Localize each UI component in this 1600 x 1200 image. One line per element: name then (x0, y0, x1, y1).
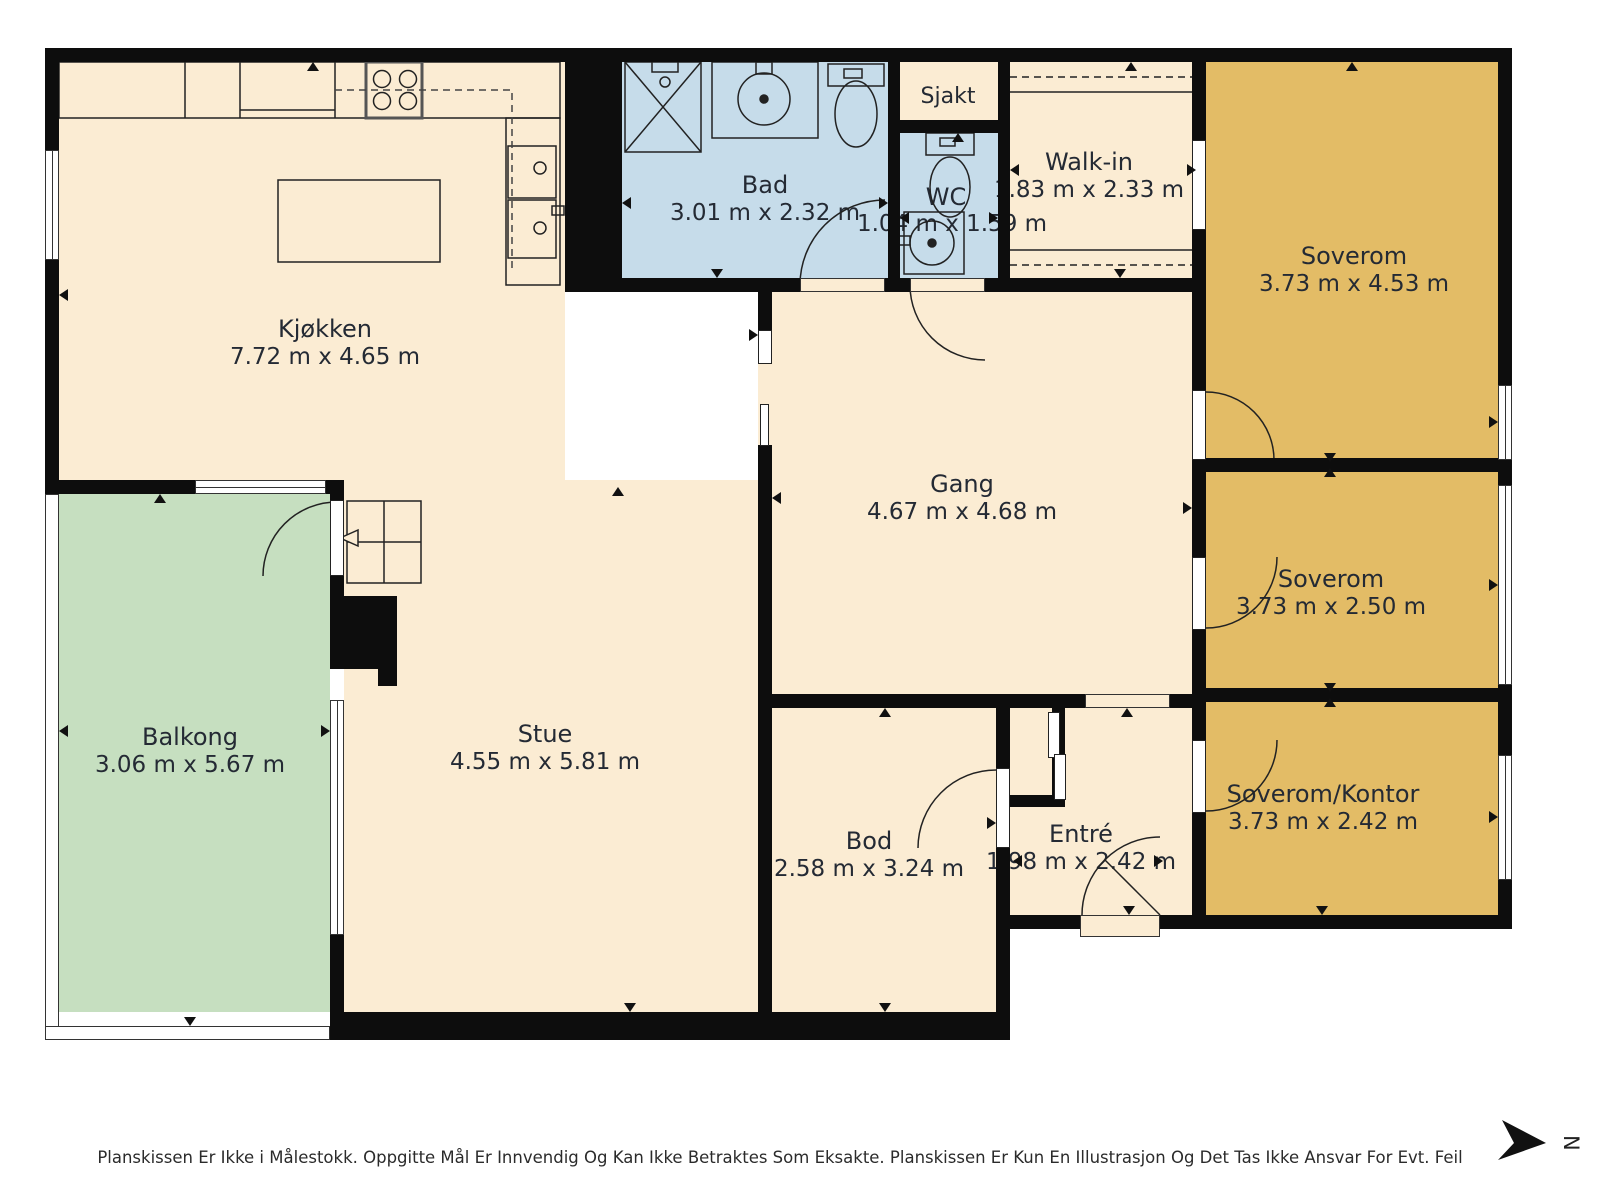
wall (758, 445, 772, 1012)
wall (996, 708, 1010, 1012)
window (45, 150, 59, 260)
wall-tick-icon (1154, 855, 1163, 867)
wall-tick-icon (624, 1003, 636, 1012)
door-arc-soverom1 (1206, 392, 1274, 460)
window (1498, 485, 1512, 685)
wall-tick-icon (1187, 164, 1196, 176)
door-leaf-soverom2 (1192, 557, 1206, 630)
wall (1206, 688, 1498, 702)
wall (1170, 694, 1192, 708)
wall-tick-icon (1489, 416, 1498, 428)
wall-tick-icon (1324, 683, 1336, 692)
table-icon (340, 501, 421, 583)
front-door-threshold (1080, 915, 1160, 937)
wall-tick-icon (711, 269, 723, 278)
wall (330, 1012, 1010, 1040)
wall (330, 935, 344, 1012)
wall-tick-icon (1125, 62, 1137, 71)
wall (900, 120, 998, 133)
wall (45, 48, 1512, 62)
floor-plan: Kjøkken 7.72 m x 4.65 m Bad 3.01 m x 2.3… (0, 0, 1600, 1200)
door-leaf-soverom1 (1192, 390, 1206, 460)
sliding-door-jamb (758, 330, 772, 364)
window (195, 480, 326, 494)
wall (885, 278, 910, 292)
balcony-railing (45, 1026, 330, 1040)
window (1498, 755, 1512, 880)
wall-tick-icon (1324, 698, 1336, 707)
wall-tick-icon (1013, 855, 1022, 867)
wall-tick-icon (900, 212, 909, 224)
wall (565, 62, 622, 292)
door-arc-soverom2 (1206, 557, 1277, 628)
door-arc-balkong (263, 502, 337, 576)
wall (758, 694, 1085, 708)
wall-tick-icon (1346, 62, 1358, 71)
wall-tick-icon (749, 329, 758, 341)
wall (1498, 460, 1512, 485)
wall-tick-icon (1316, 906, 1328, 915)
wall-tick-icon (59, 725, 68, 737)
wall-tick-icon (1010, 164, 1019, 176)
door-arc-bod (918, 770, 996, 848)
wall-tick-icon (987, 817, 996, 829)
wall-tick-icon (989, 212, 998, 224)
wall-tick-icon (952, 133, 964, 142)
closet-sliding-door (1054, 754, 1066, 800)
wardrobe-icon (1010, 77, 1192, 265)
door-arc-kontor (1206, 740, 1277, 811)
wall (1498, 62, 1512, 385)
window (330, 700, 344, 935)
sliding-door-leaf (760, 404, 769, 446)
door-leaf-balkong (330, 500, 344, 576)
chimney-block (378, 669, 397, 686)
wall-tick-icon (1489, 579, 1498, 591)
wall (1192, 460, 1206, 557)
wall (758, 292, 772, 330)
wall-tick-icon (1183, 502, 1192, 514)
wall (1160, 915, 1512, 929)
wall (1010, 915, 1080, 929)
wall (330, 576, 344, 596)
wall-tick-icon (1121, 708, 1133, 717)
door-threshold-wc (910, 278, 985, 292)
wall-tick-icon (1489, 811, 1498, 823)
wall (622, 278, 800, 292)
balcony-railing (45, 494, 59, 1040)
wall-tick-icon (1324, 468, 1336, 477)
chimney-block (330, 596, 397, 669)
wall-tick-icon (307, 62, 319, 71)
door-leaf-kontor (1192, 740, 1206, 813)
wall-tick-icon (1324, 453, 1336, 462)
wall (59, 480, 195, 494)
wall-tick-icon (772, 492, 781, 504)
closet-sliding-door (1048, 712, 1060, 758)
wall-tick-icon (321, 725, 330, 737)
wall-tick-icon (622, 197, 631, 209)
wall-tick-icon (1123, 906, 1135, 915)
wall (1192, 630, 1206, 740)
door-threshold-bad (800, 278, 885, 292)
door-leaf-bod (996, 768, 1010, 848)
wall (1192, 230, 1206, 390)
wall (1206, 458, 1498, 472)
wall-tick-icon (879, 197, 888, 209)
wall (326, 480, 344, 494)
wall (888, 62, 900, 278)
kitchen-counter (59, 62, 560, 285)
door-arc-wc (910, 285, 985, 360)
wall (1192, 813, 1206, 915)
door-arc-bad (800, 200, 885, 285)
shower-icon (625, 62, 701, 152)
wc-toilet-icon (926, 133, 974, 217)
wall (998, 62, 1010, 278)
wall-tick-icon (879, 708, 891, 717)
wall (985, 278, 1206, 292)
opening-gang-entre (1085, 694, 1170, 708)
bathroom-sink-icon (712, 62, 818, 138)
wall-tick-icon (612, 487, 624, 496)
opening-walkin-soverom (1192, 140, 1206, 230)
wall (45, 62, 59, 494)
wall-tick-icon (59, 289, 68, 301)
wall-tick-icon (879, 1003, 891, 1012)
wall-tick-icon (154, 494, 166, 503)
wall (1498, 685, 1512, 755)
window (1498, 385, 1512, 460)
toilet-icon (828, 64, 884, 147)
wall (1192, 62, 1206, 140)
kitchen-sink-icon (508, 146, 564, 258)
wall-tick-icon (184, 1017, 196, 1026)
kitchen-island (278, 180, 440, 262)
wall-tick-icon (1114, 269, 1126, 278)
